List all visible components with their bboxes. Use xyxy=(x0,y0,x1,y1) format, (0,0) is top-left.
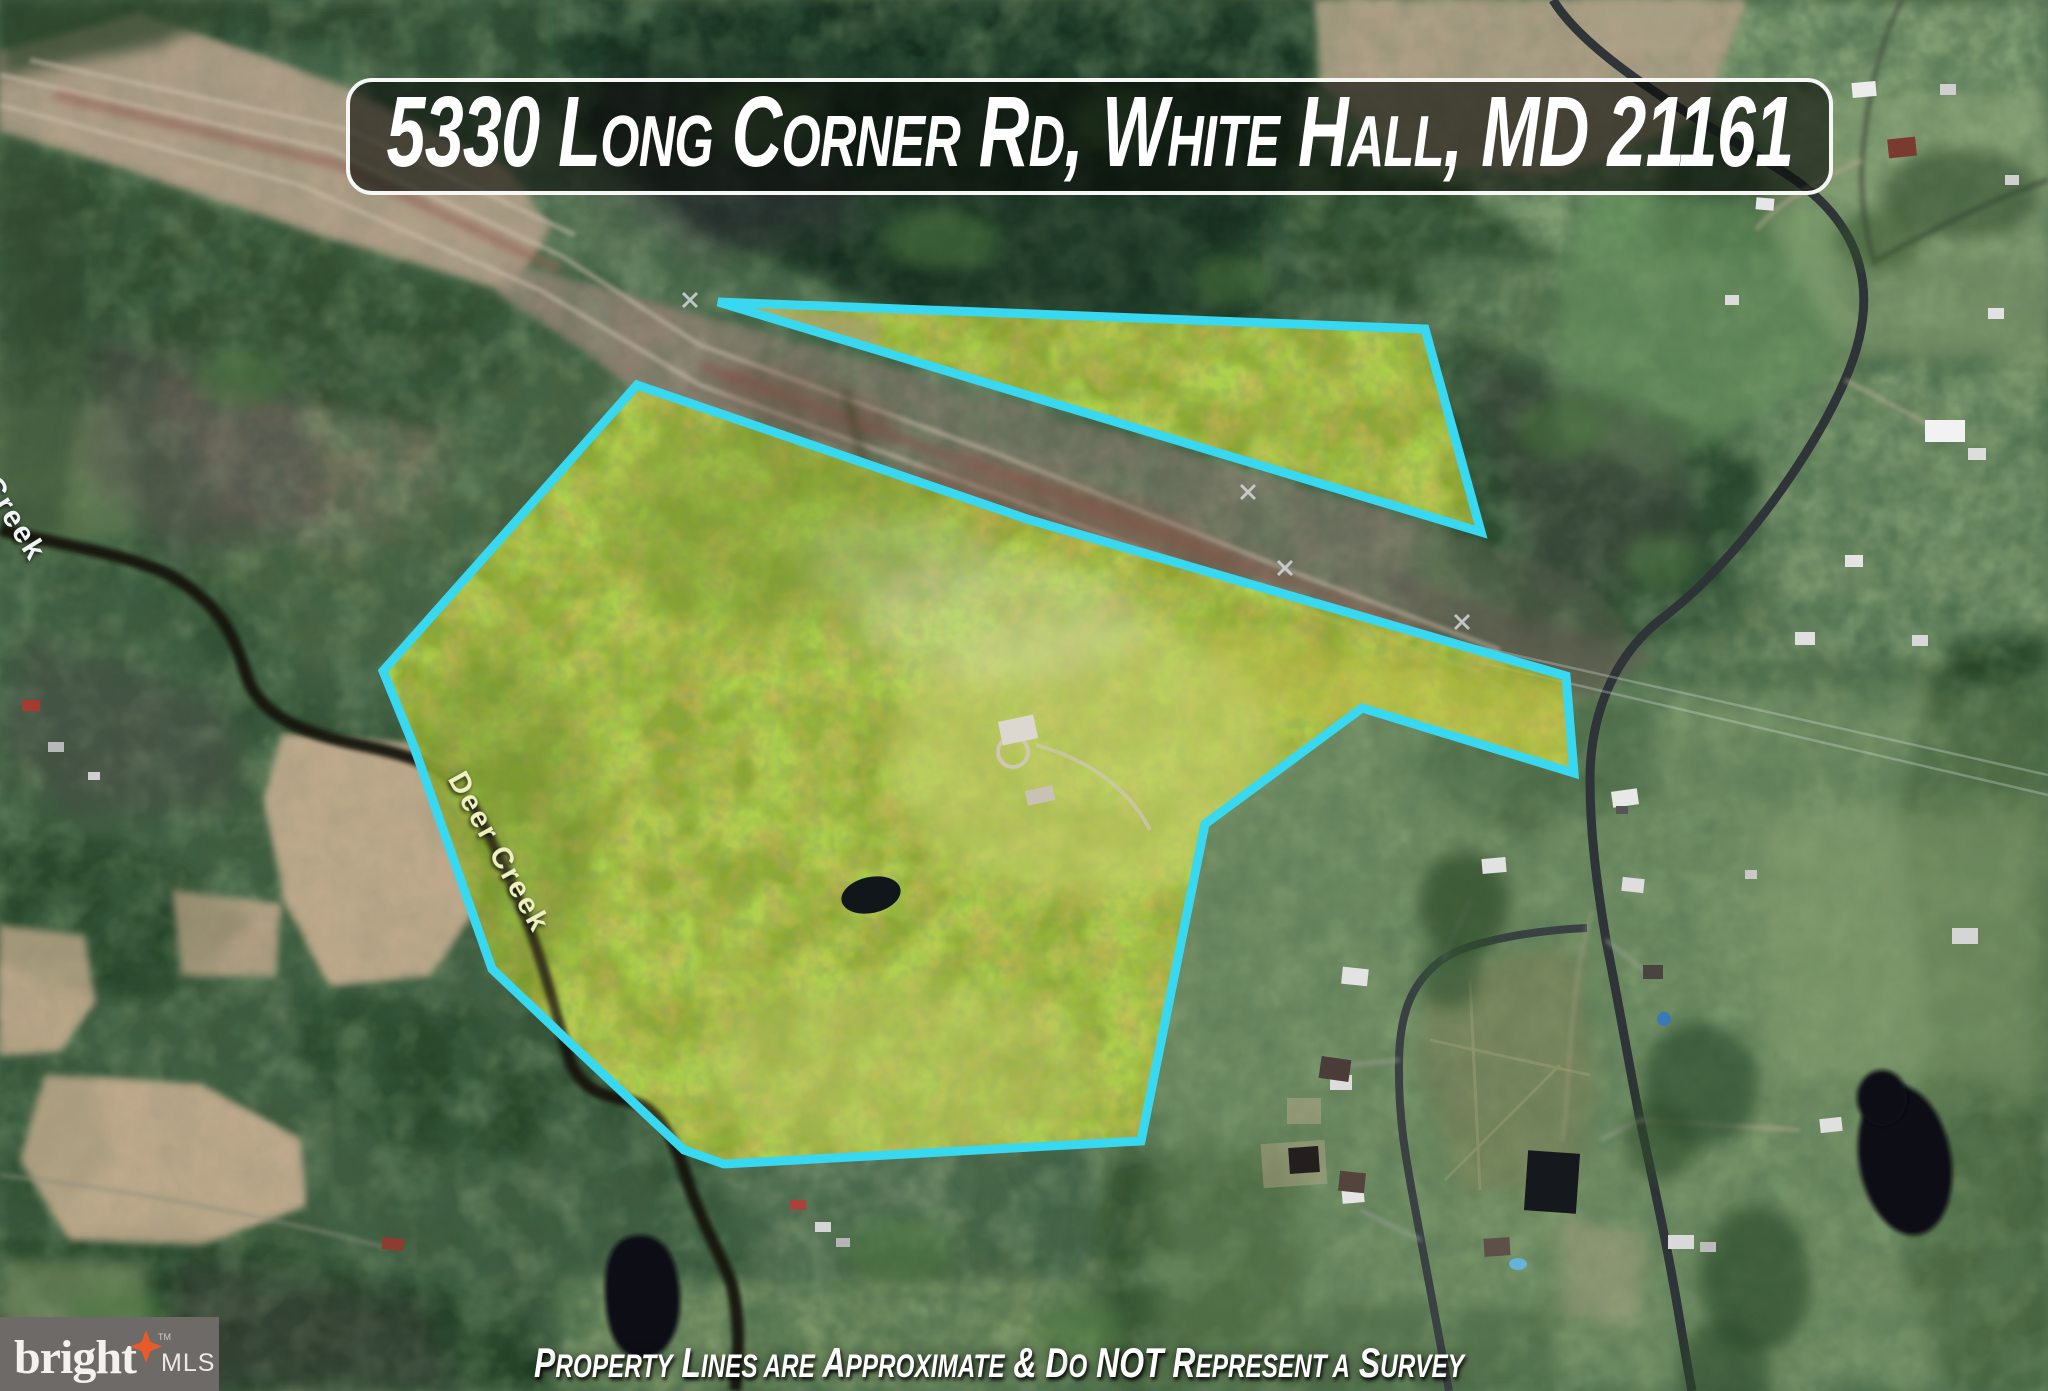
svg-text:TM: TM xyxy=(158,1332,171,1342)
svg-text:MLS: MLS xyxy=(161,1349,215,1377)
svg-text:bright: bright xyxy=(14,1331,137,1384)
